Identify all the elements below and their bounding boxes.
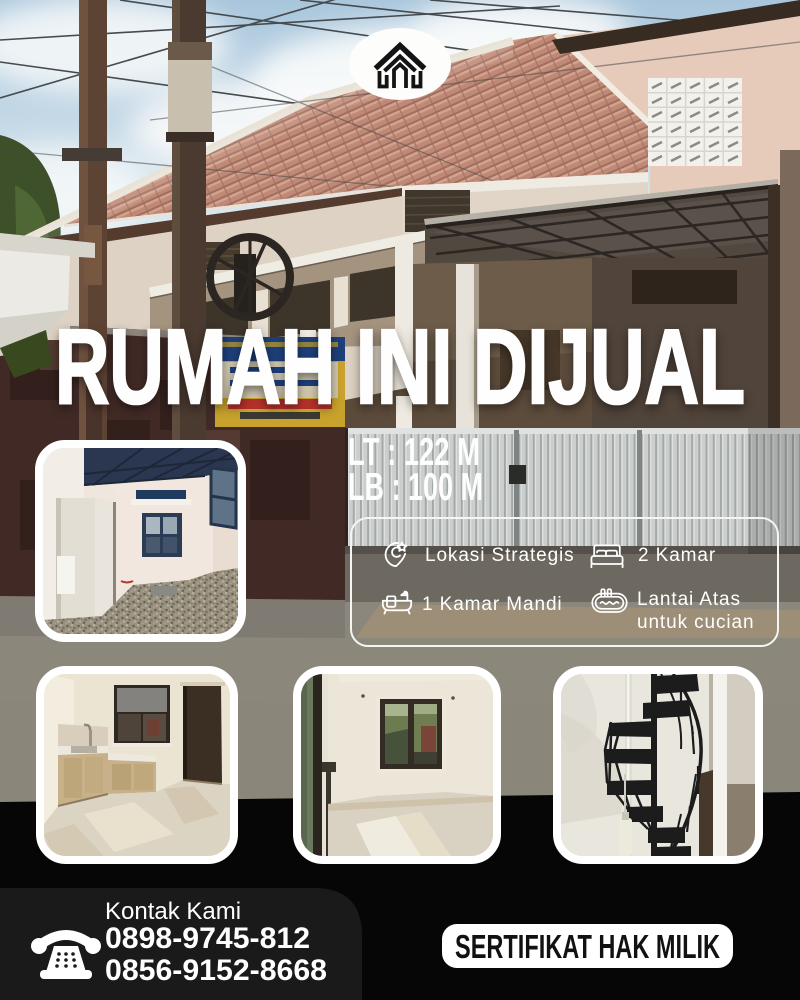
- svg-text:RUMAH INI DIJUAL: RUMAH INI DIJUAL: [55, 308, 745, 426]
- svg-text:SERTIFIKAT HAK MILIK: SERTIFIKAT HAK MILIK: [455, 928, 720, 965]
- svg-text:0856-9152-8668: 0856-9152-8668: [105, 954, 327, 987]
- svg-text:LB : 100 M: LB : 100 M: [348, 466, 483, 509]
- svg-text:0898-9745-812: 0898-9745-812: [105, 922, 310, 955]
